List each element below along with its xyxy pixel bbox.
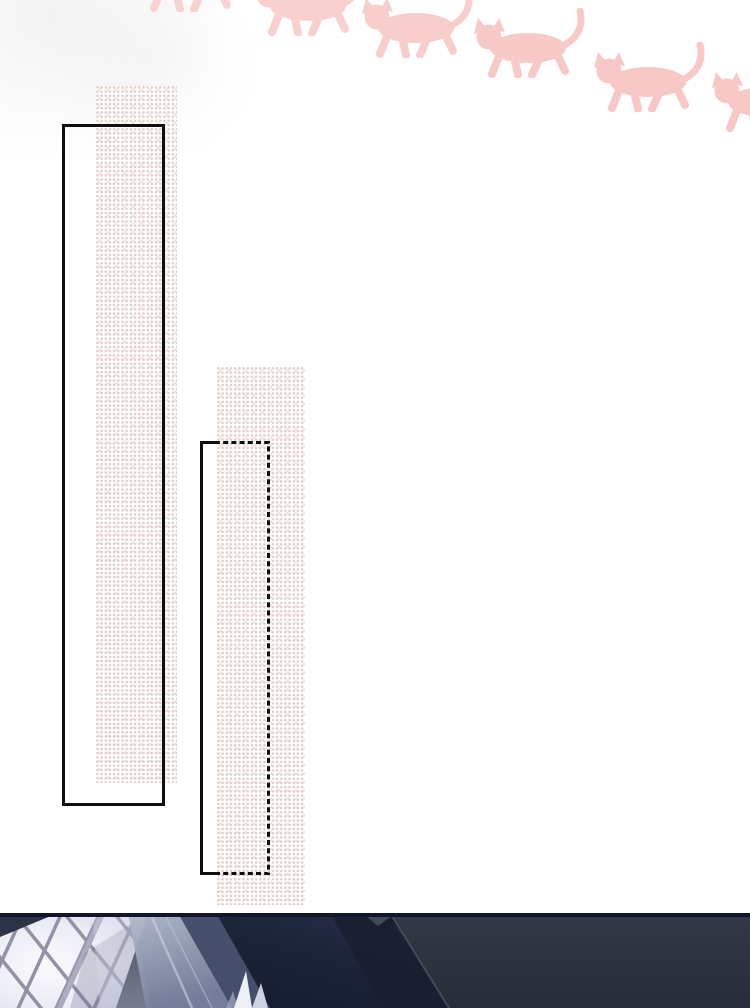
panel-frame-1 <box>64 126 164 805</box>
bottom-panel <box>0 913 750 1008</box>
panel-top-band <box>0 913 750 917</box>
right-wall <box>389 913 750 1008</box>
comic-page <box>0 0 750 1008</box>
panel-frame-2-solid-edge <box>202 443 219 874</box>
panel-frames <box>0 0 750 1008</box>
panel-frame-2-dashed-edge <box>215 443 269 874</box>
